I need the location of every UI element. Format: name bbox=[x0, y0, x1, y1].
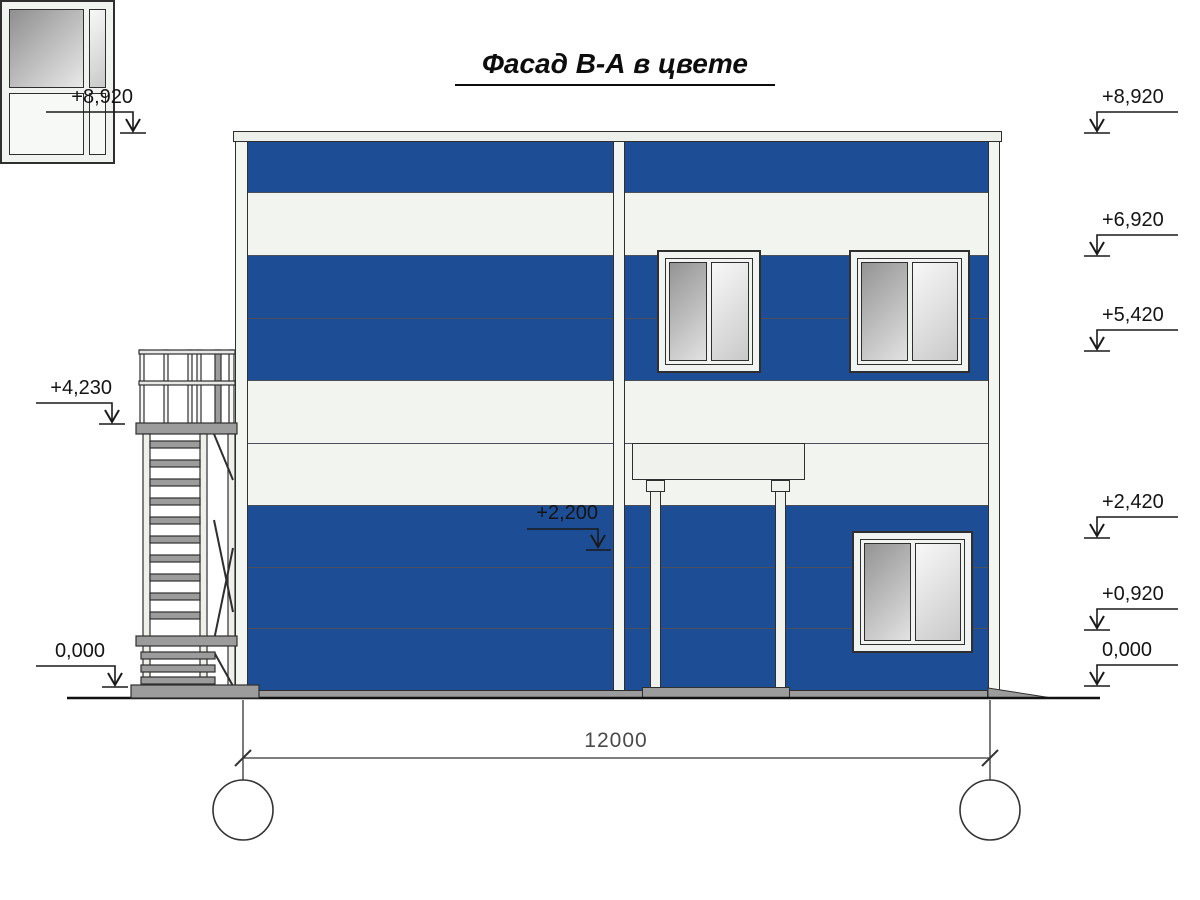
axis-label-b: В bbox=[213, 792, 273, 828]
facade-stripe bbox=[248, 318, 613, 381]
level-arrow-icon bbox=[36, 403, 125, 424]
facade-drawing-canvas: Фасад В-А в цвете bbox=[0, 0, 1200, 900]
window-upper-left bbox=[657, 250, 761, 373]
facade-stripe bbox=[625, 142, 988, 192]
level-arrow-icon bbox=[1084, 112, 1178, 133]
window-pane-left bbox=[861, 262, 908, 361]
level-arrow-icon bbox=[1084, 330, 1178, 351]
elevation-label: 0,000 bbox=[1102, 639, 1152, 662]
canopy-post-left bbox=[650, 491, 661, 690]
canopy-post-right bbox=[775, 491, 786, 690]
elevation-label: +8,920 bbox=[1102, 86, 1164, 109]
entrance-canopy bbox=[632, 443, 805, 480]
wall-section-left bbox=[248, 142, 613, 690]
level-arrow-icon bbox=[1084, 235, 1178, 256]
facade-stripe bbox=[248, 142, 613, 192]
window-frame bbox=[860, 539, 965, 645]
parapet-cap bbox=[233, 131, 1002, 142]
facade-stripe bbox=[248, 192, 613, 256]
door-glass bbox=[9, 9, 84, 88]
entrance-door bbox=[0, 0, 115, 164]
window-upper-right bbox=[849, 250, 970, 373]
facade-stripe bbox=[248, 380, 613, 444]
window-pane-left bbox=[864, 543, 911, 641]
drawing-title: Фасад В-А в цвете bbox=[455, 48, 775, 86]
window-pane-right bbox=[915, 543, 962, 641]
elevation-label: +0,920 bbox=[1102, 583, 1164, 606]
level-arrow-icon bbox=[1084, 609, 1178, 630]
window-frame bbox=[857, 258, 962, 365]
window-pane-right bbox=[912, 262, 959, 361]
dimension-label: 12000 bbox=[551, 729, 681, 753]
window-frame bbox=[665, 258, 753, 365]
elevation-label: +5,420 bbox=[1102, 304, 1164, 327]
axis-label-a: А bbox=[960, 792, 1020, 828]
window-lower-right bbox=[852, 531, 973, 653]
level-arrow-icon bbox=[1084, 517, 1178, 538]
facade-stripe bbox=[248, 255, 613, 319]
door-sidelight-top bbox=[89, 9, 106, 88]
pilaster-right bbox=[988, 142, 1000, 690]
level-arrow-icon bbox=[1084, 665, 1178, 686]
facade-stripe bbox=[248, 628, 613, 691]
facade-stripe bbox=[625, 192, 988, 256]
plinth bbox=[248, 690, 988, 699]
elevation-label: 0,000 bbox=[10, 640, 105, 663]
pilaster-center bbox=[613, 142, 625, 690]
elevation-label: +8,920 bbox=[38, 86, 133, 109]
pilaster-left bbox=[235, 142, 248, 690]
window-pane-right bbox=[711, 262, 749, 361]
facade-stripe bbox=[248, 443, 613, 506]
window-pane-left bbox=[669, 262, 707, 361]
elevation-label: +2,200 bbox=[503, 502, 598, 525]
facade-stripe bbox=[248, 567, 613, 629]
elevation-label: +2,420 bbox=[1102, 491, 1164, 514]
elevation-label: +4,230 bbox=[17, 377, 112, 400]
elevation-label: +6,920 bbox=[1102, 209, 1164, 232]
level-arrow-icon bbox=[36, 666, 128, 687]
entrance-step bbox=[642, 687, 790, 698]
facade-stripe bbox=[625, 380, 988, 444]
